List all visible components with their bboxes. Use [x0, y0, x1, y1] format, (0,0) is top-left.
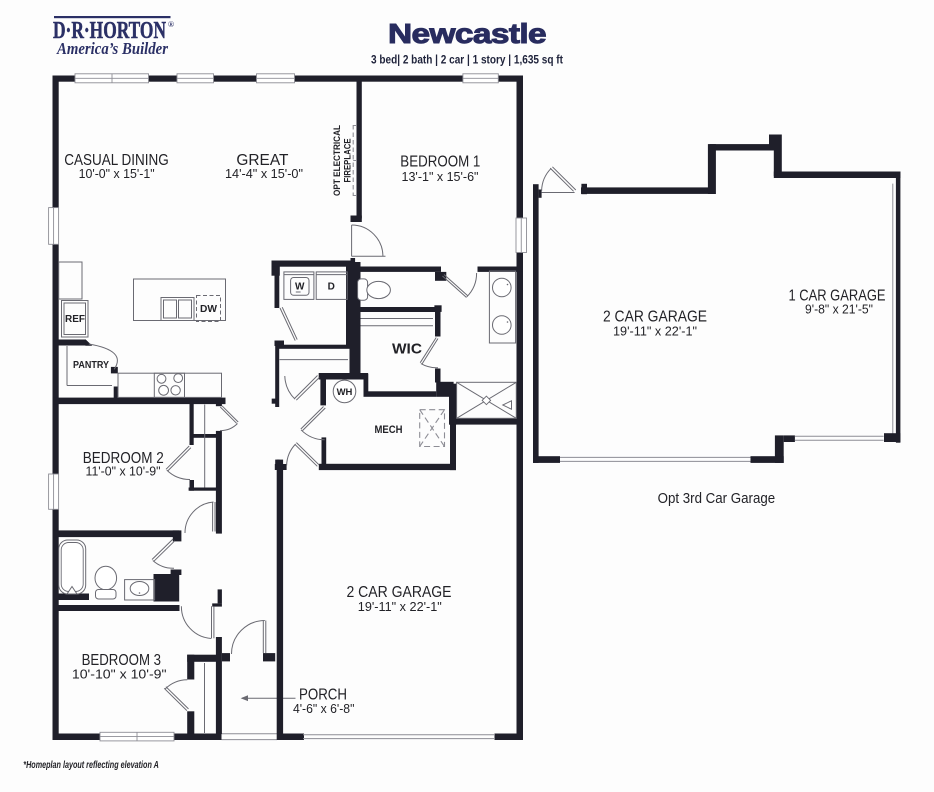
svg-text:19'-11" x 22'-1": 19'-11" x 22'-1" — [613, 324, 697, 339]
svg-text:Newcastle: Newcastle — [388, 18, 546, 49]
svg-text:DW: DW — [200, 304, 218, 315]
svg-text:4'-6" x 6'-8": 4'-6" x 6'-8" — [293, 701, 355, 716]
svg-text:FIREPLACE: FIREPLACE — [343, 139, 354, 183]
svg-text:3 bed| 2 bath | 2 car | 1 stor: 3 bed| 2 bath | 2 car | 1 story | 1,635 … — [371, 53, 563, 67]
svg-text:14'-4" x 15'-0": 14'-4" x 15'-0" — [225, 166, 303, 181]
svg-text:*Homeplan layout reflecting el: *Homeplan layout reflecting elevation A — [23, 759, 159, 771]
svg-text:WIC: WIC — [392, 341, 422, 358]
svg-text:11'-0" x 10'-9": 11'-0" x 10'-9" — [86, 463, 161, 478]
svg-text:WH: WH — [337, 387, 353, 398]
svg-text:®: ® — [168, 20, 174, 29]
svg-text:9'-8" x 21'-5": 9'-8" x 21'-5" — [805, 302, 873, 317]
svg-text:PANTRY: PANTRY — [73, 359, 109, 371]
svg-text:D: D — [328, 282, 335, 293]
svg-text:MECH: MECH — [375, 424, 403, 436]
svg-text:Opt 3rd Car Garage: Opt 3rd Car Garage — [658, 491, 776, 507]
svg-text:OPT ELECTRICAL: OPT ELECTRICAL — [332, 125, 343, 196]
svg-text:REF: REF — [65, 314, 85, 325]
svg-text:13'-1" x 15'-6": 13'-1" x 15'-6" — [402, 169, 479, 184]
svg-text:10'-0" x 15'-1": 10'-0" x 15'-1" — [79, 166, 155, 181]
svg-text:W: W — [295, 282, 305, 293]
svg-text:America’s Builder: America’s Builder — [56, 39, 168, 58]
svg-text:19'-11" x 22'-1": 19'-11" x 22'-1" — [358, 599, 442, 614]
svg-text:BEDROOM 1: BEDROOM 1 — [400, 153, 480, 170]
svg-text:10'-10" x 10'-9": 10'-10" x 10'-9" — [72, 667, 167, 682]
